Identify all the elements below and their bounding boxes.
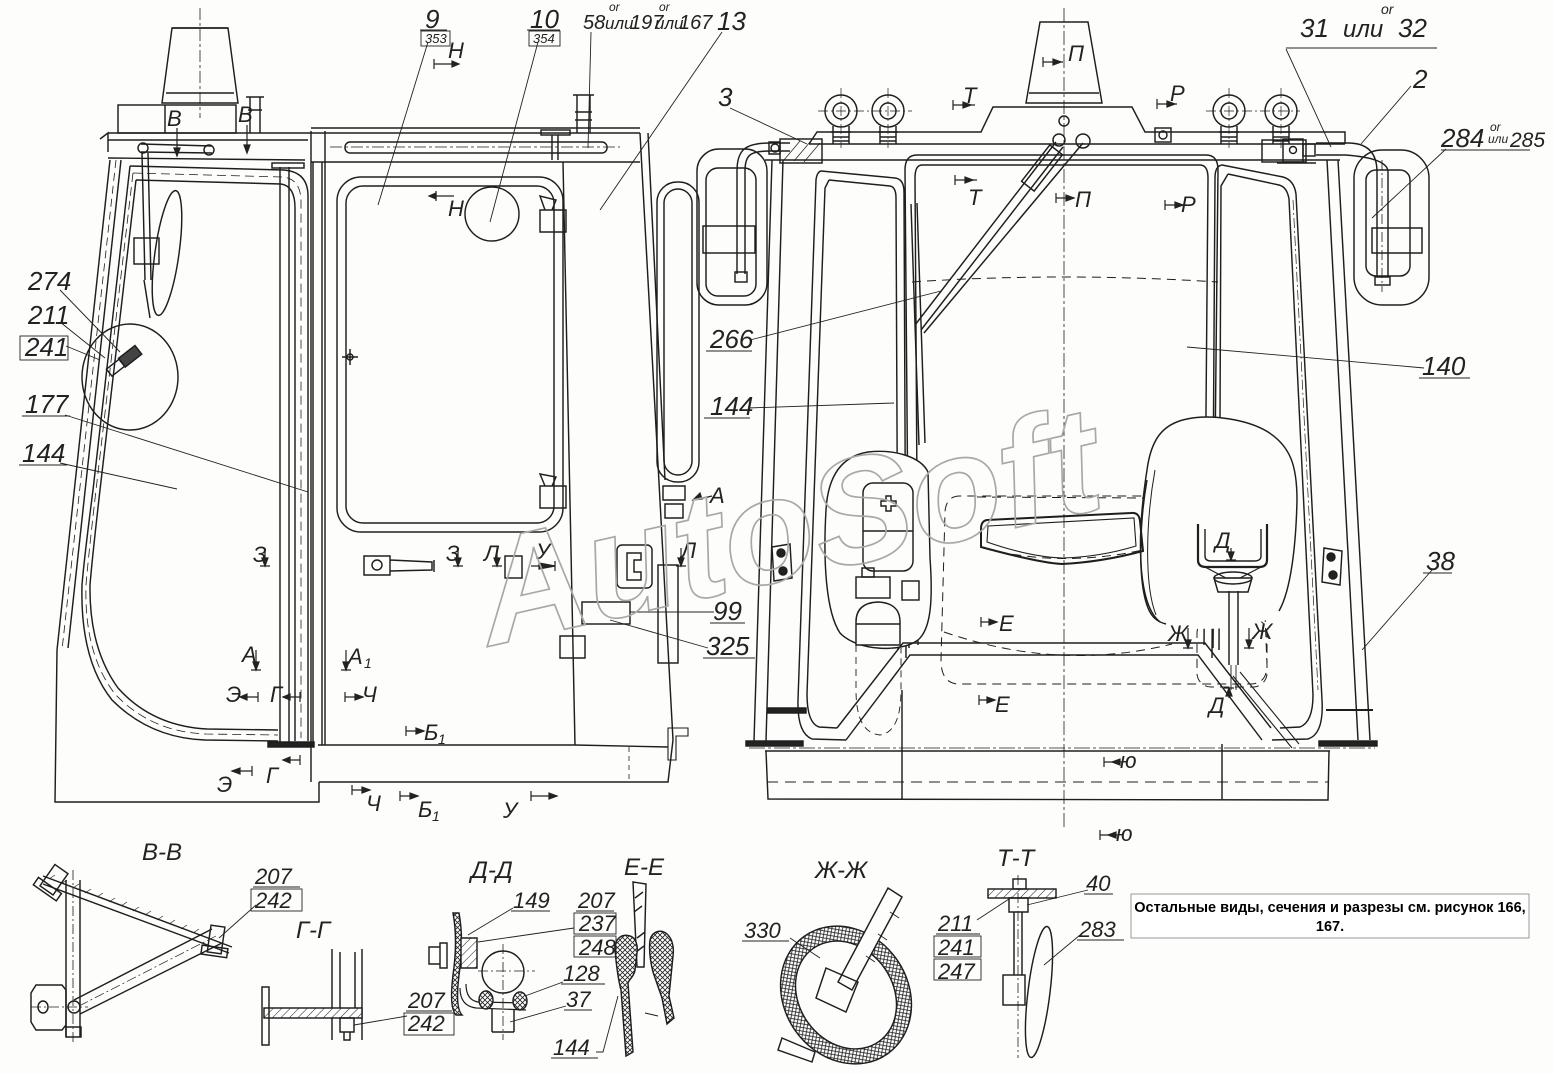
svg-text:1: 1: [438, 731, 446, 747]
svg-text:207: 207: [407, 988, 445, 1013]
svg-text:Г-Г: Г-Г: [296, 917, 332, 944]
svg-text:242: 242: [407, 1011, 445, 1036]
svg-text:or: or: [1381, 1, 1395, 17]
svg-text:32: 32: [1398, 13, 1427, 43]
svg-text:10: 10: [530, 4, 559, 34]
svg-text:П: П: [1075, 187, 1091, 212]
svg-text:3: 3: [718, 82, 733, 112]
svg-text:или: или: [1343, 16, 1383, 43]
svg-text:177: 177: [25, 389, 70, 419]
svg-text:140: 140: [1422, 351, 1466, 381]
svg-text:211: 211: [27, 300, 69, 330]
svg-text:167: 167: [679, 12, 713, 34]
svg-text:Н: Н: [448, 196, 464, 221]
svg-text:207: 207: [254, 864, 292, 889]
svg-text:211: 211: [937, 911, 973, 936]
svg-text:144: 144: [553, 1035, 590, 1060]
svg-text:40: 40: [1086, 871, 1111, 896]
svg-text:283: 283: [1078, 917, 1116, 942]
svg-text:128: 128: [563, 961, 600, 986]
svg-text:Э: Э: [226, 682, 241, 707]
svg-text:or: or: [659, 0, 671, 14]
svg-text:Е: Е: [995, 692, 1010, 717]
svg-text:Г: Г: [266, 763, 280, 788]
svg-text:или: или: [1488, 132, 1508, 146]
svg-text:237: 237: [578, 911, 616, 936]
svg-text:Т-Т: Т-Т: [997, 845, 1037, 872]
svg-text:2: 2: [1412, 64, 1428, 94]
svg-text:144: 144: [22, 438, 65, 468]
svg-text:353: 353: [425, 31, 447, 46]
svg-text:Е-Е: Е-Е: [624, 854, 665, 881]
svg-text:А: А: [346, 644, 363, 669]
svg-text:В: В: [238, 102, 253, 127]
svg-text:Б: Б: [424, 720, 438, 745]
svg-text:Р: Р: [1170, 81, 1185, 106]
svg-text:266: 266: [709, 324, 754, 354]
svg-text:Е: Е: [999, 611, 1014, 636]
svg-text:ю: ю: [1116, 821, 1133, 846]
svg-text:38: 38: [1426, 546, 1455, 576]
svg-text:Ч: Ч: [362, 682, 377, 707]
svg-text:248: 248: [578, 935, 616, 960]
svg-text:Ч: Ч: [366, 791, 381, 816]
svg-text:241: 241: [24, 332, 68, 362]
svg-text:В: В: [167, 106, 182, 131]
svg-text:285: 285: [1509, 129, 1545, 152]
svg-text:31: 31: [1300, 13, 1329, 43]
svg-text:9: 9: [425, 4, 439, 34]
svg-text:207: 207: [577, 888, 615, 913]
svg-text:ю: ю: [1120, 748, 1137, 773]
svg-text:Д-Д: Д-Д: [468, 857, 513, 884]
svg-text:144: 144: [710, 391, 753, 421]
svg-text:Ж-Ж: Ж-Ж: [814, 857, 869, 884]
svg-text:Б: Б: [418, 797, 432, 822]
svg-text:П: П: [1068, 41, 1084, 66]
svg-text:325: 325: [706, 631, 750, 661]
svg-text:Н: Н: [448, 38, 464, 63]
svg-text:13: 13: [717, 6, 746, 36]
svg-text:Т: Т: [968, 185, 983, 210]
svg-text:Э: Э: [217, 772, 232, 797]
svg-text:354: 354: [533, 31, 555, 46]
svg-text:149: 149: [513, 888, 550, 913]
svg-text:Остальные виды, сечения и разр: Остальные виды, сечения и разрезы см. ри…: [1134, 900, 1525, 916]
svg-text:Д: Д: [1212, 528, 1231, 553]
svg-text:Г: Г: [270, 682, 284, 707]
svg-text:Ж: Ж: [1251, 619, 1274, 644]
svg-text:58: 58: [583, 12, 605, 34]
svg-text:В-В: В-В: [142, 839, 182, 866]
svg-text:1: 1: [364, 655, 372, 671]
svg-text:1: 1: [432, 808, 440, 824]
svg-text:274: 274: [27, 266, 71, 296]
svg-text:242: 242: [254, 888, 292, 913]
svg-text:or: or: [609, 0, 621, 14]
svg-text:Д: Д: [1206, 693, 1225, 718]
svg-text:У: У: [502, 798, 519, 823]
svg-text:241: 241: [937, 935, 975, 960]
svg-text:37: 37: [566, 987, 591, 1012]
svg-text:284: 284: [1440, 123, 1484, 153]
svg-text:167.: 167.: [1316, 919, 1344, 935]
svg-text:330: 330: [744, 918, 781, 943]
